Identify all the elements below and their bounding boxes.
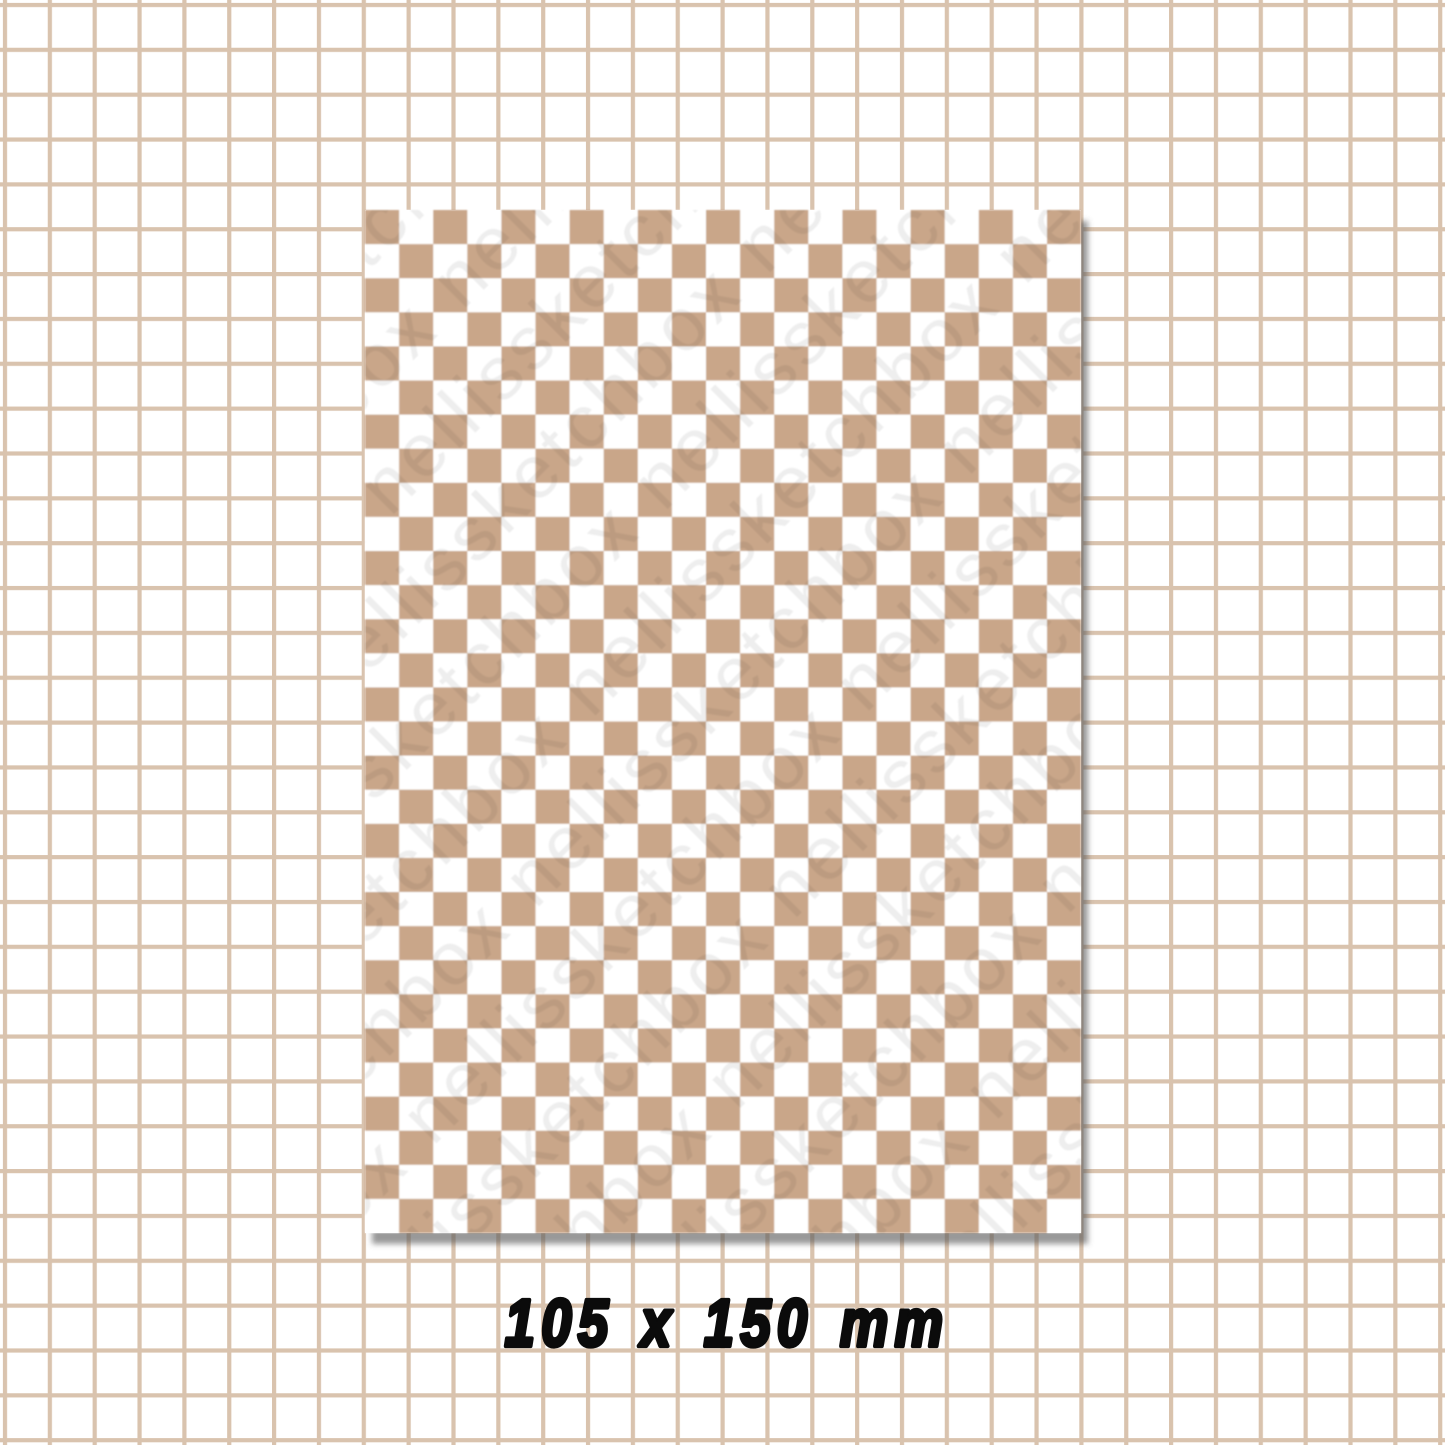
svg-text:105 x 150 mm: 105 x 150 mm: [505, 1286, 950, 1360]
